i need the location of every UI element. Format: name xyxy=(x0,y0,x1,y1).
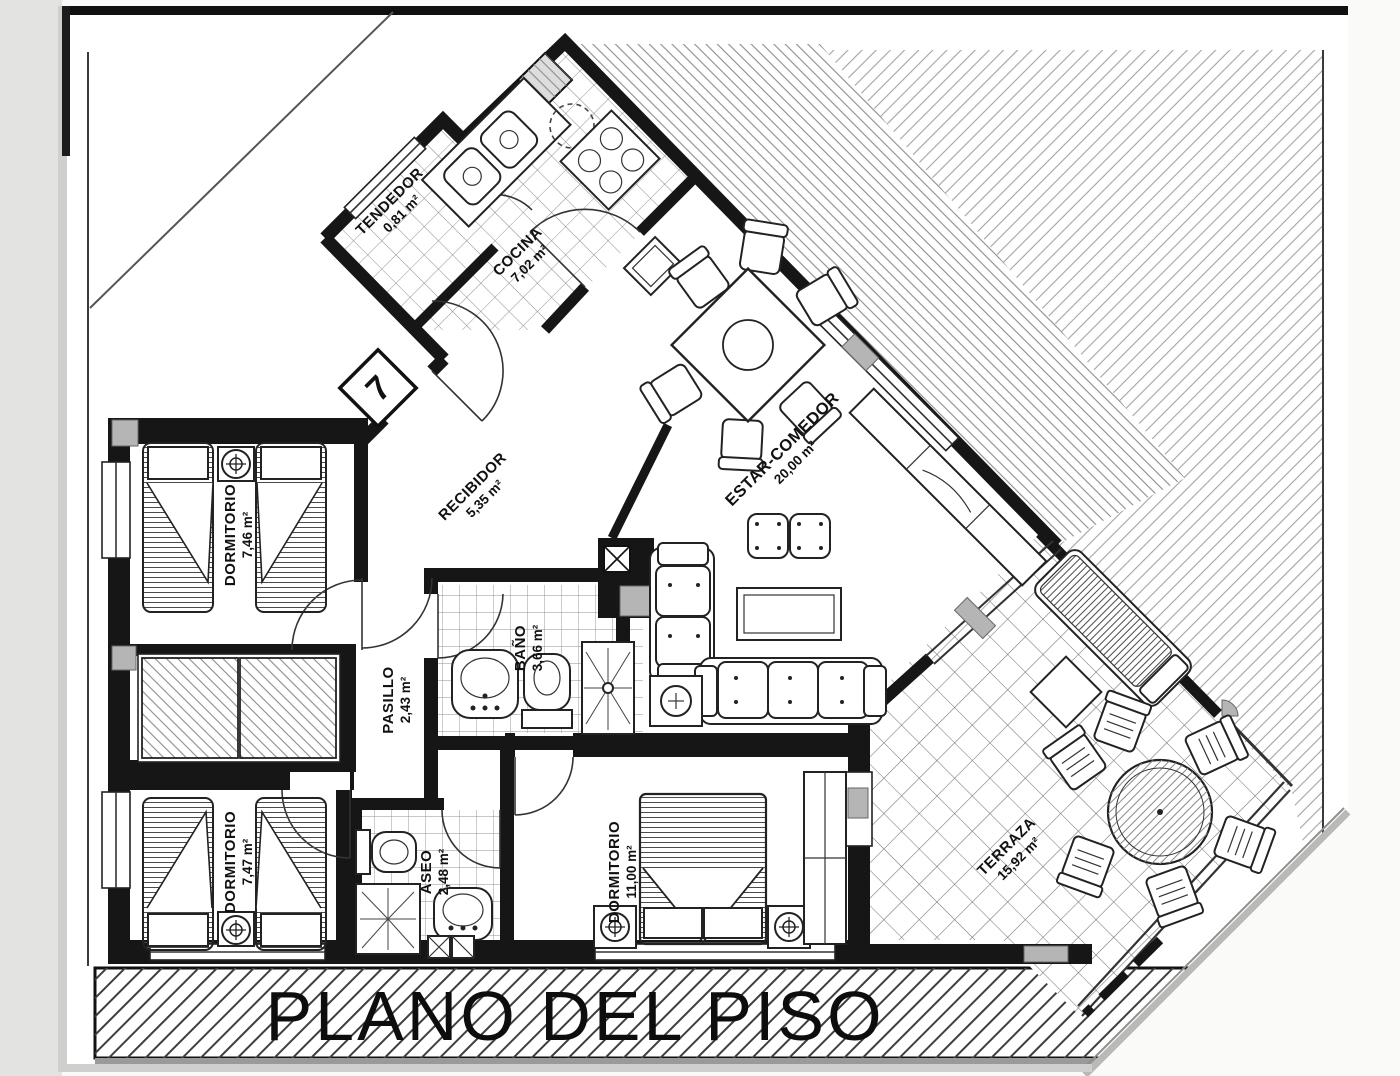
svg-text:2,48 m²: 2,48 m² xyxy=(436,848,451,895)
coffee-table xyxy=(737,588,841,640)
svg-text:DORMITORIO: DORMITORIO xyxy=(222,484,239,586)
pouf xyxy=(790,514,830,558)
svg-text:7,47 m²: 7,47 m² xyxy=(240,838,255,885)
terrace-wall-slider xyxy=(1024,946,1068,962)
column xyxy=(112,646,136,670)
scan-left-margin xyxy=(0,0,62,1076)
room-label-aseo: ASEO2,48 m² xyxy=(418,848,451,895)
svg-text:2,43 m²: 2,43 m² xyxy=(398,676,413,723)
svg-text:PASILLO: PASILLO xyxy=(380,666,397,733)
svg-text:BAÑO: BAÑO xyxy=(511,625,529,671)
svg-text:ASEO: ASEO xyxy=(418,850,435,895)
svg-text:3,66 m²: 3,66 m² xyxy=(530,624,545,671)
room-label-bano: BAÑO3,66 m² xyxy=(511,624,545,671)
column xyxy=(112,420,138,446)
floor-plan-drawing: PLANO DEL PISO xyxy=(0,0,1400,1076)
floor-plan-page: PLANO DEL PISO xyxy=(0,0,1400,1076)
svg-text:7,46 m²: 7,46 m² xyxy=(240,511,255,558)
svg-text:DORMITORIO: DORMITORIO xyxy=(606,821,623,923)
scan-corner-edge xyxy=(62,6,70,156)
svg-text:11,00 m²: 11,00 m² xyxy=(624,845,639,899)
title-band: PLANO DEL PISO xyxy=(95,968,1192,1065)
page-left-shadow xyxy=(58,6,67,1072)
sofa-three-seat xyxy=(695,658,886,724)
pouf xyxy=(748,514,788,558)
svg-text:DORMITORIO: DORMITORIO xyxy=(222,811,239,913)
page-bottom-shadow xyxy=(62,1064,1092,1072)
wardrobes xyxy=(138,654,340,762)
corner-side-table xyxy=(650,676,702,726)
scan-top-edge xyxy=(62,6,1348,15)
plan-title: PLANO DEL PISO xyxy=(265,977,884,1055)
